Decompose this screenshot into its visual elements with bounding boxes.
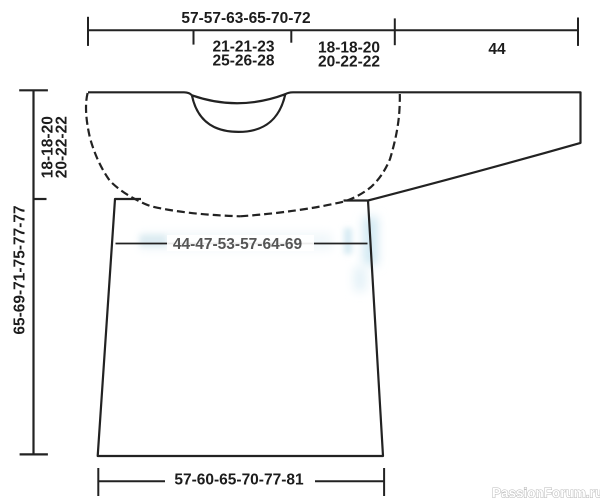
svg-text:57-60-65-70-77-81: 57-60-65-70-77-81 (174, 472, 304, 489)
svg-text:65-69-71-75-77-77: 65-69-71-75-77-77 (12, 205, 29, 334)
svg-text:20-22-22: 20-22-22 (54, 116, 71, 178)
svg-text:44-47-53-57-64-69: 44-47-53-57-64-69 (173, 236, 303, 253)
svg-text:44: 44 (488, 41, 506, 58)
svg-text:57-57-63-65-70-72: 57-57-63-65-70-72 (181, 10, 310, 27)
svg-text:PassionForum.ru: PassionForum.ru (492, 486, 600, 501)
svg-text:20-22-22: 20-22-22 (318, 54, 380, 71)
svg-text:25-26-28: 25-26-28 (212, 52, 274, 69)
